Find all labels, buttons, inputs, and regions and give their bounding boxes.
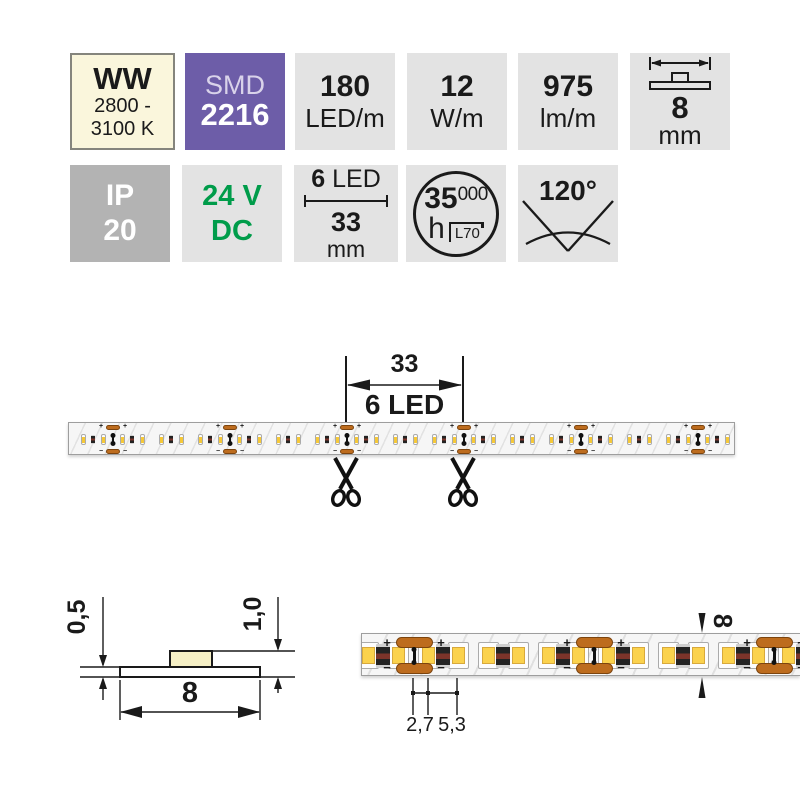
polarity-mark: − [743, 661, 751, 674]
led-emitter [752, 647, 765, 664]
led-chip [218, 434, 223, 445]
led-density-unit: LED/m [305, 105, 384, 132]
solder-pad [223, 425, 237, 430]
resistor [559, 435, 563, 444]
lifetime-standard: L70 [449, 222, 484, 242]
solder-pad [223, 449, 237, 454]
lifetime-hour-unit: h [428, 215, 445, 242]
via-symbol [413, 649, 416, 663]
closeup-width-label: 8 [710, 604, 736, 638]
polarity-mark: + [708, 423, 712, 430]
scissors-icon [445, 456, 481, 508]
polarity-mark: − [617, 661, 625, 674]
power-unit: W/m [430, 105, 483, 132]
led-chip [140, 434, 145, 445]
resistor [169, 435, 173, 444]
led-emitter [414, 437, 417, 443]
dim-led-count-label: 6 LED [346, 389, 463, 421]
led-chip [628, 642, 649, 669]
polarity-mark: − [474, 448, 478, 455]
ip-code: IP [106, 179, 134, 214]
led-emitter [726, 437, 729, 443]
led-emitter [609, 437, 612, 443]
led-chip [666, 434, 671, 445]
led-emitter [355, 437, 358, 443]
beam-angle-icon [519, 199, 617, 255]
led-emitter [336, 437, 339, 443]
polarity-mark: − [684, 448, 688, 455]
led-emitter [687, 437, 690, 443]
badge-beam-angle: 120° [518, 165, 618, 262]
cut-length-value: 33 [331, 208, 361, 236]
led-density-value: 180 [320, 71, 370, 103]
polarity-mark: − [357, 448, 361, 455]
polarity-mark: − [591, 448, 595, 455]
led-strip-top-view: ++−−++−−++−−++−−++−−++−− [68, 422, 735, 455]
chip-type-label: SMD [205, 71, 265, 99]
led-emitter [511, 437, 514, 443]
led-chip [448, 642, 469, 669]
led-chip [569, 434, 574, 445]
led-emitter [141, 437, 144, 443]
solder-pad [106, 425, 120, 430]
resistor [403, 435, 407, 444]
via-symbol [463, 435, 465, 444]
flux-value: 975 [543, 71, 593, 103]
measure-line-icon [304, 195, 388, 207]
resistor [676, 644, 690, 668]
via-symbol [593, 649, 596, 663]
led-chip [588, 434, 593, 445]
cut-led-count: 6 LED [311, 166, 381, 192]
led-emitter [632, 647, 645, 664]
led-emitter [238, 437, 241, 443]
badge-ip-rating: IP 20 [70, 165, 170, 262]
led-chip [491, 434, 496, 445]
via-symbol [773, 649, 776, 663]
led-chip [432, 434, 437, 445]
resistor [715, 435, 719, 444]
polarity-mark: + [617, 636, 625, 649]
led-emitter [452, 647, 465, 664]
solder-pad [691, 449, 705, 454]
led-emitter [453, 437, 456, 443]
color-temp-code: WW [93, 63, 152, 96]
led-chip [374, 434, 379, 445]
led-emitter [433, 437, 436, 443]
led-chip [508, 642, 529, 669]
resistor [520, 435, 524, 444]
led-chip [81, 434, 86, 445]
led-chip [276, 434, 281, 445]
led-emitter [492, 437, 495, 443]
led-emitter [602, 647, 615, 664]
via-symbol [229, 435, 231, 444]
led-emitter [394, 437, 397, 443]
led-strip-closeup-view: ++−−++−−++−− [361, 633, 800, 676]
resistor [442, 435, 446, 444]
led-emitter [258, 437, 261, 443]
led-emitter [572, 647, 585, 664]
polarity-mark: − [240, 448, 244, 455]
solder-pad [691, 425, 705, 430]
led-chip [530, 434, 535, 445]
led-emitter [472, 437, 475, 443]
led-emitter [219, 437, 222, 443]
led-chip [354, 434, 359, 445]
badge-strip-width: 8 mm [630, 53, 730, 150]
resistor [91, 435, 95, 444]
polarity-mark: + [437, 636, 445, 649]
solder-pad [574, 449, 588, 454]
width-arrow-icon [648, 55, 712, 93]
polarity-mark: + [99, 423, 103, 430]
badge-voltage: 24 V DC [182, 165, 282, 262]
solder-pad [340, 425, 354, 430]
solder-pad [457, 425, 471, 430]
voltage-type: DC [211, 214, 253, 249]
color-temp-range-2: 3100 K [91, 118, 154, 140]
led-emitter [662, 647, 675, 664]
polarity-mark: − [563, 661, 571, 674]
led-emitter [392, 647, 405, 664]
badge-lifetime: 35000 h L70 [406, 165, 506, 262]
led-emitter [102, 437, 105, 443]
led-emitter [550, 437, 553, 443]
led-emitter [542, 647, 555, 664]
led-emitter [628, 437, 631, 443]
resistor [325, 435, 329, 444]
led-emitter [512, 647, 525, 664]
led-chip [608, 434, 613, 445]
dim-length-label: 33 [346, 350, 463, 379]
cross-section-width: 8 [160, 677, 220, 710]
led-chip [159, 434, 164, 445]
led-emitter [180, 437, 183, 443]
led-chip [549, 434, 554, 445]
badge-chip-type: SMD 2216 [185, 53, 285, 150]
cross-section-pcb-height: 0,5 [62, 587, 92, 647]
led-emitter [82, 437, 85, 443]
solder-pad [340, 449, 354, 454]
polarity-mark: + [474, 423, 478, 430]
solder-pad [574, 425, 588, 430]
power-value: 12 [440, 71, 473, 103]
led-emitter [482, 647, 495, 664]
resistor [208, 435, 212, 444]
polarity-mark: + [567, 423, 571, 430]
via-symbol [346, 435, 348, 444]
led-chip [315, 434, 320, 445]
led-emitter [531, 437, 534, 443]
solder-pad [457, 449, 471, 454]
led-emitter [706, 437, 709, 443]
flux-unit: lm/m [540, 105, 596, 132]
polarity-mark: + [123, 423, 127, 430]
led-emitter [121, 437, 124, 443]
via-symbol [112, 435, 114, 444]
led-chip [705, 434, 710, 445]
via-symbol [580, 435, 582, 444]
polarity-mark: − [437, 661, 445, 674]
polarity-mark: − [567, 448, 571, 455]
strip-width-unit: mm [658, 122, 701, 148]
resistor [676, 435, 680, 444]
resistor [247, 435, 251, 444]
led-chip [471, 434, 476, 445]
led-chip [179, 434, 184, 445]
led-emitter [667, 437, 670, 443]
polarity-mark: − [216, 448, 220, 455]
led-chip [686, 434, 691, 445]
polarity-mark: + [743, 636, 751, 649]
led-chip [101, 434, 106, 445]
led-emitter [316, 437, 319, 443]
solder-pad [106, 449, 120, 454]
polarity-mark: + [216, 423, 220, 430]
lifetime-unit-row: h L70 [428, 215, 484, 242]
resistor [364, 435, 368, 444]
scissors-icon [328, 456, 364, 508]
led-emitter [422, 647, 435, 664]
led-chip [198, 434, 203, 445]
badge-led-density: 180 LED/m [295, 53, 395, 150]
led-chip [257, 434, 262, 445]
led-chip [647, 434, 652, 445]
led-emitter [589, 437, 592, 443]
badge-color-temperature: WW 2800 - 3100 K [70, 53, 175, 150]
polarity-mark: − [708, 448, 712, 455]
chip-size-label: 2216 [201, 99, 270, 132]
led-chip [452, 434, 457, 445]
via-symbol [697, 435, 699, 444]
closeup-dim-small: 2,7 [402, 714, 438, 737]
led-emitter [570, 437, 573, 443]
resistor [130, 435, 134, 444]
cross-section-total-height: 1,0 [238, 584, 268, 644]
led-chip [413, 434, 418, 445]
led-emitter [160, 437, 163, 443]
led-chip [296, 434, 301, 445]
strip-width-value: 8 [671, 93, 688, 122]
led-emitter [277, 437, 280, 443]
resistor [481, 435, 485, 444]
polarity-mark: + [240, 423, 244, 430]
polarity-mark: − [123, 448, 127, 455]
polarity-mark: − [383, 661, 391, 674]
cut-length-unit: mm [327, 237, 365, 261]
led-chip [725, 434, 730, 445]
led-emitter [648, 437, 651, 443]
polarity-mark: − [333, 448, 337, 455]
polarity-mark: + [450, 423, 454, 430]
resistor [286, 435, 290, 444]
led-chip [335, 434, 340, 445]
led-emitter [362, 647, 375, 664]
led-emitter [375, 437, 378, 443]
led-emitter [722, 647, 735, 664]
polarity-mark: + [591, 423, 595, 430]
lifetime-hours: 35000 [424, 185, 488, 214]
badge-luminous-flux: 975 lm/m [518, 53, 618, 150]
polarity-mark: + [333, 423, 337, 430]
led-chip [510, 434, 515, 445]
polarity-mark: − [99, 448, 103, 455]
resistor [598, 435, 602, 444]
led-chip [120, 434, 125, 445]
voltage-value: 24 V [202, 179, 262, 214]
led-emitter [297, 437, 300, 443]
polarity-mark: + [383, 636, 391, 649]
led-emitter [782, 647, 795, 664]
polarity-mark: − [450, 448, 454, 455]
led-strip-datasheet: WW 2800 - 3100 K SMD 2216 180 LED/m 12 W… [0, 0, 800, 800]
closeup-dim-large: 5,3 [434, 714, 470, 737]
led-emitter [199, 437, 202, 443]
led-chip [393, 434, 398, 445]
color-temp-range-1: 2800 - [94, 95, 151, 117]
badge-cut-unit: 6 LED 33 mm [294, 165, 398, 262]
polarity-mark: + [357, 423, 361, 430]
resistor [496, 644, 510, 668]
polarity-mark: + [684, 423, 688, 430]
badge-power: 12 W/m [407, 53, 507, 150]
resistor [637, 435, 641, 444]
led-chip [627, 434, 632, 445]
led-chip [237, 434, 242, 445]
ip-value: 20 [103, 214, 136, 249]
lifetime-circle-icon: 35000 h L70 [413, 171, 499, 257]
polarity-mark: + [563, 636, 571, 649]
